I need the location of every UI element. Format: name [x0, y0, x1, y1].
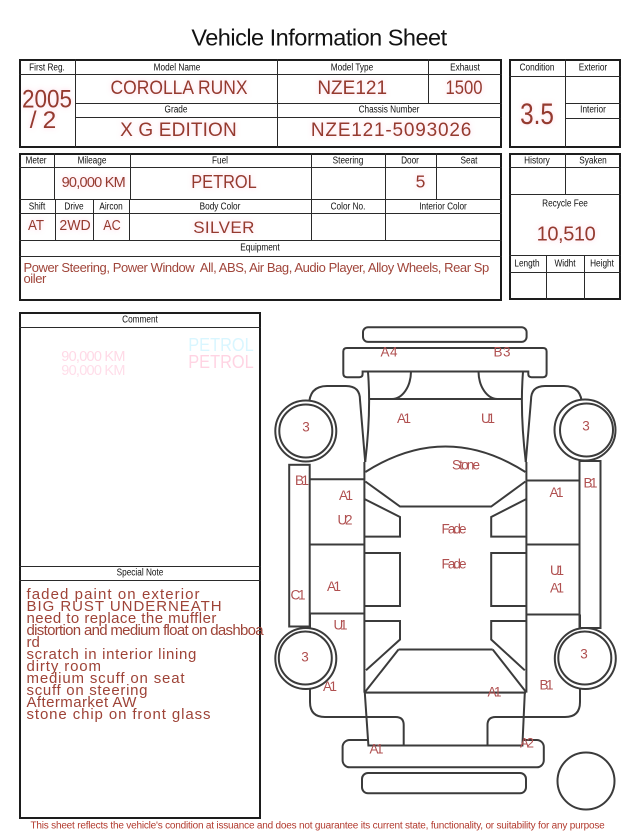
svg-text:Fade: Fade: [442, 557, 467, 572]
svg-text:U1: U1: [334, 618, 348, 633]
svg-text:A1: A1: [550, 485, 564, 500]
svg-text:U2: U2: [338, 513, 353, 528]
svg-text:A1: A1: [550, 581, 564, 596]
svg-text:U1: U1: [550, 563, 564, 578]
svg-text:3: 3: [301, 650, 309, 665]
svg-text:U1: U1: [481, 411, 495, 426]
svg-text:A1: A1: [323, 679, 337, 694]
svg-text:Fade: Fade: [442, 522, 467, 537]
svg-text:B1: B1: [584, 476, 598, 491]
svg-text:B3: B3: [494, 345, 511, 360]
svg-text:A2: A2: [520, 736, 534, 751]
svg-text:B1: B1: [295, 473, 309, 488]
svg-text:3: 3: [580, 647, 588, 662]
svg-text:A1: A1: [488, 685, 502, 700]
svg-text:B1: B1: [540, 678, 554, 693]
svg-text:A1: A1: [370, 742, 384, 757]
svg-text:C1: C1: [291, 588, 306, 603]
svg-text:Stone: Stone: [452, 458, 480, 473]
svg-text:A4: A4: [381, 345, 398, 360]
svg-text:3: 3: [302, 420, 310, 435]
svg-text:A1: A1: [397, 411, 411, 426]
svg-text:A1: A1: [327, 579, 341, 594]
svg-text:3: 3: [582, 419, 590, 434]
svg-text:A1: A1: [339, 488, 353, 503]
